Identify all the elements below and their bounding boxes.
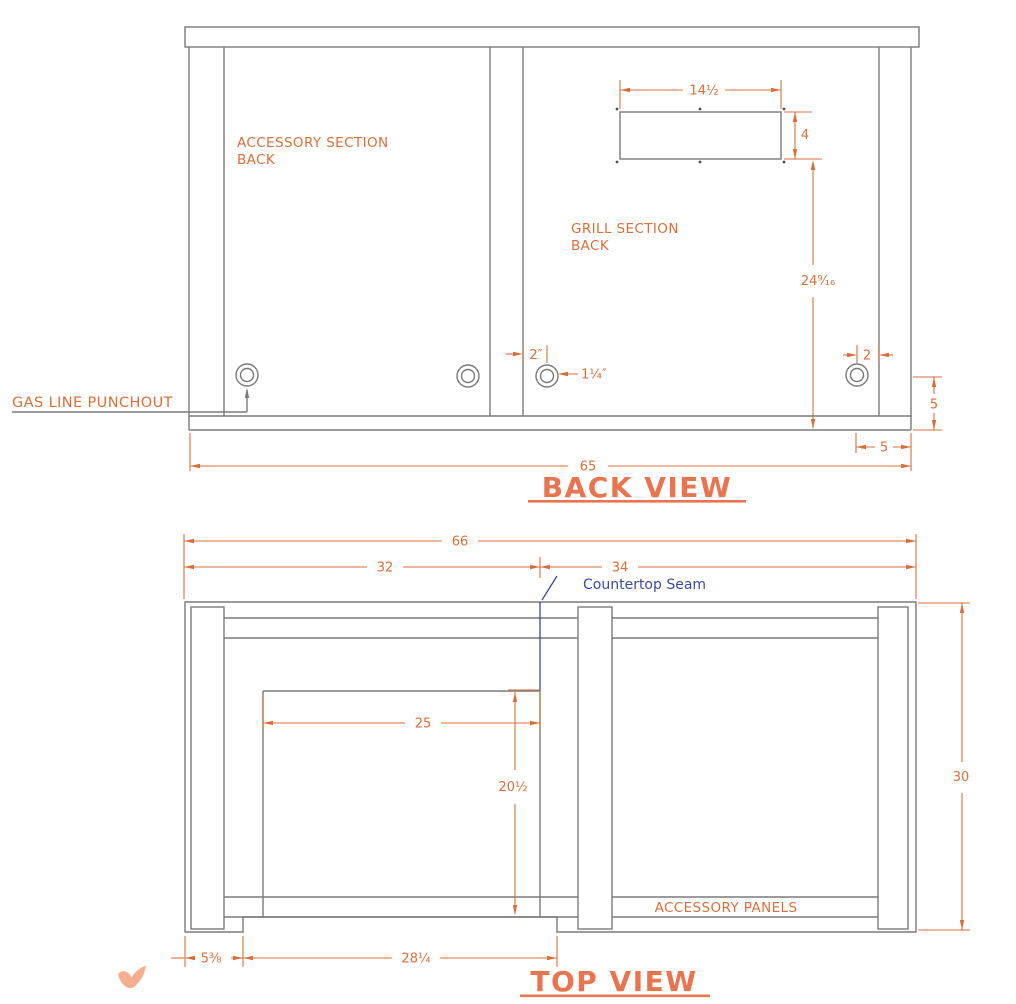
dim-punchout-edge-offset-text: 2: [863, 349, 871, 364]
back-view-title: BACK VIEW: [528, 471, 746, 504]
left-end-panel: [191, 607, 224, 929]
punchout-circle: [457, 365, 479, 387]
top-view-dimensions: 66 32 34: [171, 534, 970, 967]
vent-cutout: [620, 112, 781, 159]
top-view: 66 32 34: [171, 534, 970, 998]
grill-cutout: [263, 691, 540, 917]
gas-line-punchout-label: GAS LINE PUNCHOUT: [12, 395, 173, 411]
dim-left-offset-text: 5⅜: [201, 952, 222, 967]
back-view: 14½ 4 24⁹⁄₁₆: [12, 27, 942, 504]
dim-cutout-depth-text: 20½: [498, 780, 527, 795]
dim-cutout-to-base: 24⁹⁄₁₆: [801, 160, 835, 429]
dim-accessory-section-width: 34: [540, 561, 916, 576]
drawing-canvas: 14½ 4 24⁹⁄₁₆: [0, 0, 1016, 1004]
dim-grill-section-width-text: 32: [377, 561, 394, 576]
dim-cutout-to-base-text: 24⁹⁄₁₆: [801, 274, 835, 289]
accessory-section-label-line2: BACK: [237, 152, 276, 168]
dim-cutout-height: 4: [784, 112, 822, 159]
top-view-title-underline: [520, 995, 710, 998]
dim-cutout-width-text: 14½: [689, 84, 718, 99]
dim-punchout-edge-offset: 2: [843, 345, 893, 364]
back-view-title-underline: [528, 500, 746, 503]
dim-overall-depth: 30: [918, 603, 970, 930]
dim-cutout-width-top: 25: [263, 694, 540, 732]
dim-punchout-diameter-text: 1¼″: [581, 368, 607, 383]
right-end-panel: [878, 607, 908, 929]
back-view-title-text: BACK VIEW: [542, 471, 733, 504]
accessory-panels-label: ACCESSORY PANELS: [655, 900, 798, 916]
island-outline: [185, 602, 916, 932]
top-view-title: TOP VIEW: [520, 965, 710, 998]
back-view-labels: ACCESSORY SECTION BACK GRILL SECTION BAC…: [12, 135, 679, 411]
countertop-seam-label: Countertop Seam: [583, 577, 706, 593]
dim-front-opening-text: 28¼: [401, 952, 431, 967]
dim-overall-width: 65: [190, 433, 911, 475]
top-view-labels: Countertop Seam ACCESSORY PANELS: [583, 577, 797, 916]
drawing-page: 14½ 4 24⁹⁄₁₆: [0, 0, 1016, 1004]
punchout-circle: [236, 364, 258, 386]
dim-accessory-section-width-text: 34: [612, 561, 629, 576]
center-divider-panel: [578, 607, 612, 929]
grill-section-label: GRILL SECTION: [571, 221, 679, 237]
dim-cutout-width-top-text: 25: [415, 717, 432, 732]
dim-front-opening: 28¼: [243, 936, 557, 967]
dim-overall-depth-text: 30: [953, 770, 970, 785]
punchout-circle: [846, 364, 868, 386]
countertop-seam-line: [540, 576, 557, 691]
top-view-title-text: TOP VIEW: [530, 965, 697, 998]
countertop-edge: [185, 27, 919, 47]
dim-punchout-offset: 2″: [506, 345, 547, 363]
dim-panel-inset-text: 5: [880, 441, 888, 456]
dim-grill-section-width: 32: [184, 557, 540, 578]
back-view-structure: [12, 27, 919, 430]
punchout-circle: [536, 365, 558, 387]
dim-punchout-diameter: 1¼″: [558, 368, 607, 383]
dim-top-overall-width-text: 66: [452, 535, 469, 550]
dim-base-height-text: 5: [930, 398, 938, 413]
top-view-structure: [185, 576, 916, 932]
dim-base-height: 5: [913, 377, 942, 430]
dim-left-offset: 5⅜: [171, 936, 243, 967]
accessory-section-label: ACCESSORY SECTION: [237, 135, 388, 151]
dim-punchout-offset-text: 2″: [529, 348, 542, 363]
dim-cutout-width: 14½: [620, 80, 781, 109]
logo-bird-icon: [118, 966, 146, 989]
grill-section-label-line2: BACK: [571, 238, 610, 254]
dim-cutout-height-text: 4: [801, 128, 809, 143]
